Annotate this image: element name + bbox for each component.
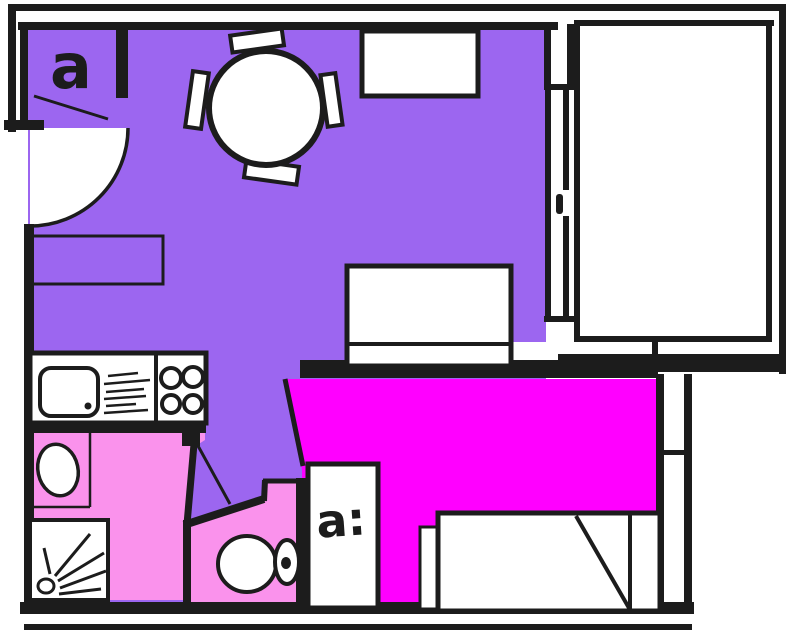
window-handle-grip (556, 194, 563, 214)
wardrobe: a: (308, 464, 378, 608)
closet-partition (116, 24, 128, 98)
shower-tray (30, 520, 108, 600)
wardrobe-label: a: (314, 491, 367, 548)
entry-closet-label: a (50, 30, 92, 103)
floor-plan: a (0, 0, 800, 641)
floor-plan-drawing: a (0, 0, 800, 641)
sofa (347, 266, 511, 366)
toilet (218, 536, 299, 592)
kitchen-sink (40, 368, 98, 416)
wall-cabinet (362, 31, 478, 96)
table-top (209, 51, 323, 165)
bed (420, 513, 660, 611)
kitchen-counter (30, 353, 206, 423)
bedside-table (420, 527, 438, 609)
